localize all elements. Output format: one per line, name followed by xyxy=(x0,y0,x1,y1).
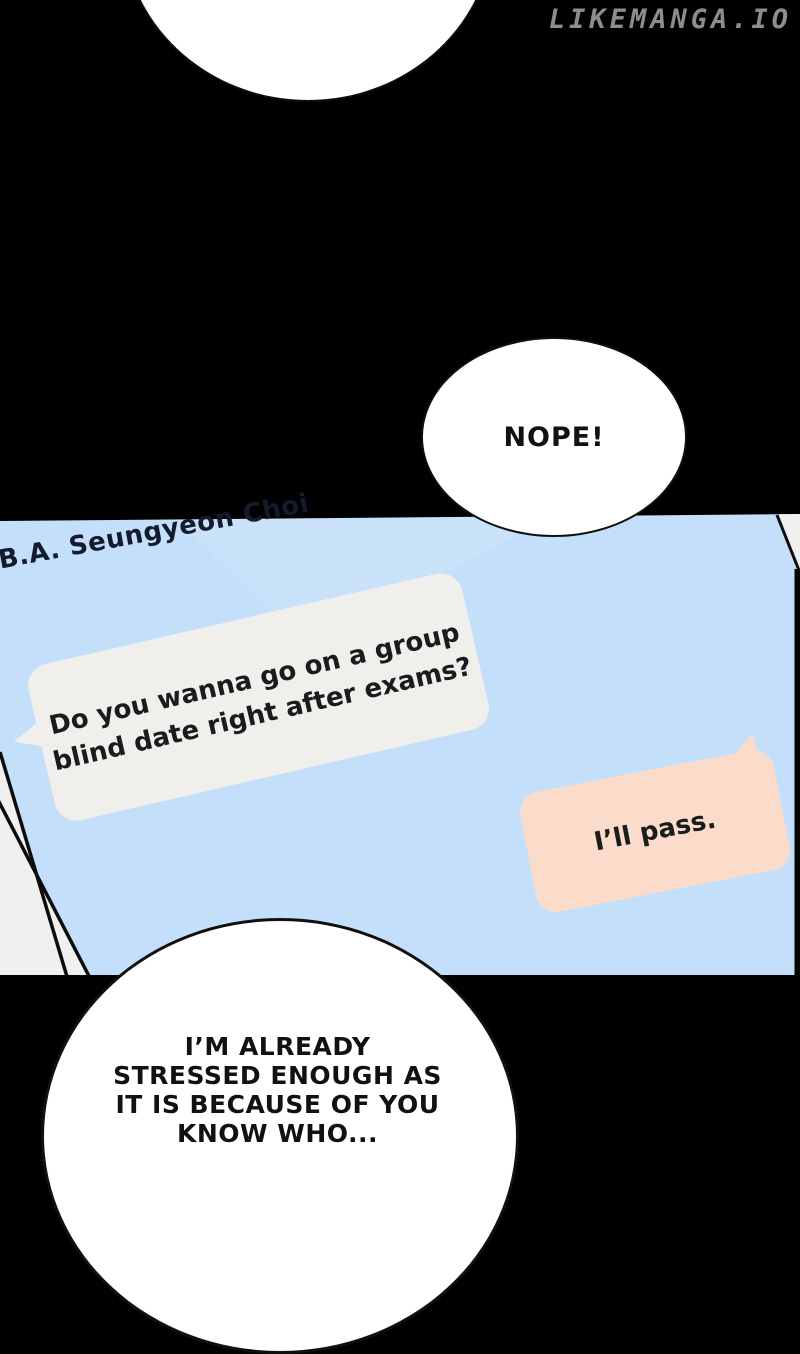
outgoing-message-text: I’ll pass. xyxy=(592,805,719,858)
stressed-speech-line: IT IS BECAUSE OF YOU xyxy=(55,1090,500,1119)
phone-right-edge xyxy=(795,569,800,975)
nope-speech-bubble: NOPE! xyxy=(421,337,687,537)
stressed-speech-line: KNOW WHO... xyxy=(55,1119,500,1148)
stressed-speech-line: I’M ALREADY xyxy=(55,1032,500,1061)
site-watermark: LIKEMANGA.IO xyxy=(549,4,792,35)
stressed-speech-line: STRESSED ENOUGH AS xyxy=(55,1061,500,1090)
partial-speech-bubble xyxy=(121,0,495,102)
stressed-speech-text: I’M ALREADY STRESSED ENOUGH AS IT IS BEC… xyxy=(55,1032,500,1148)
nope-speech-text: NOPE! xyxy=(503,422,604,453)
